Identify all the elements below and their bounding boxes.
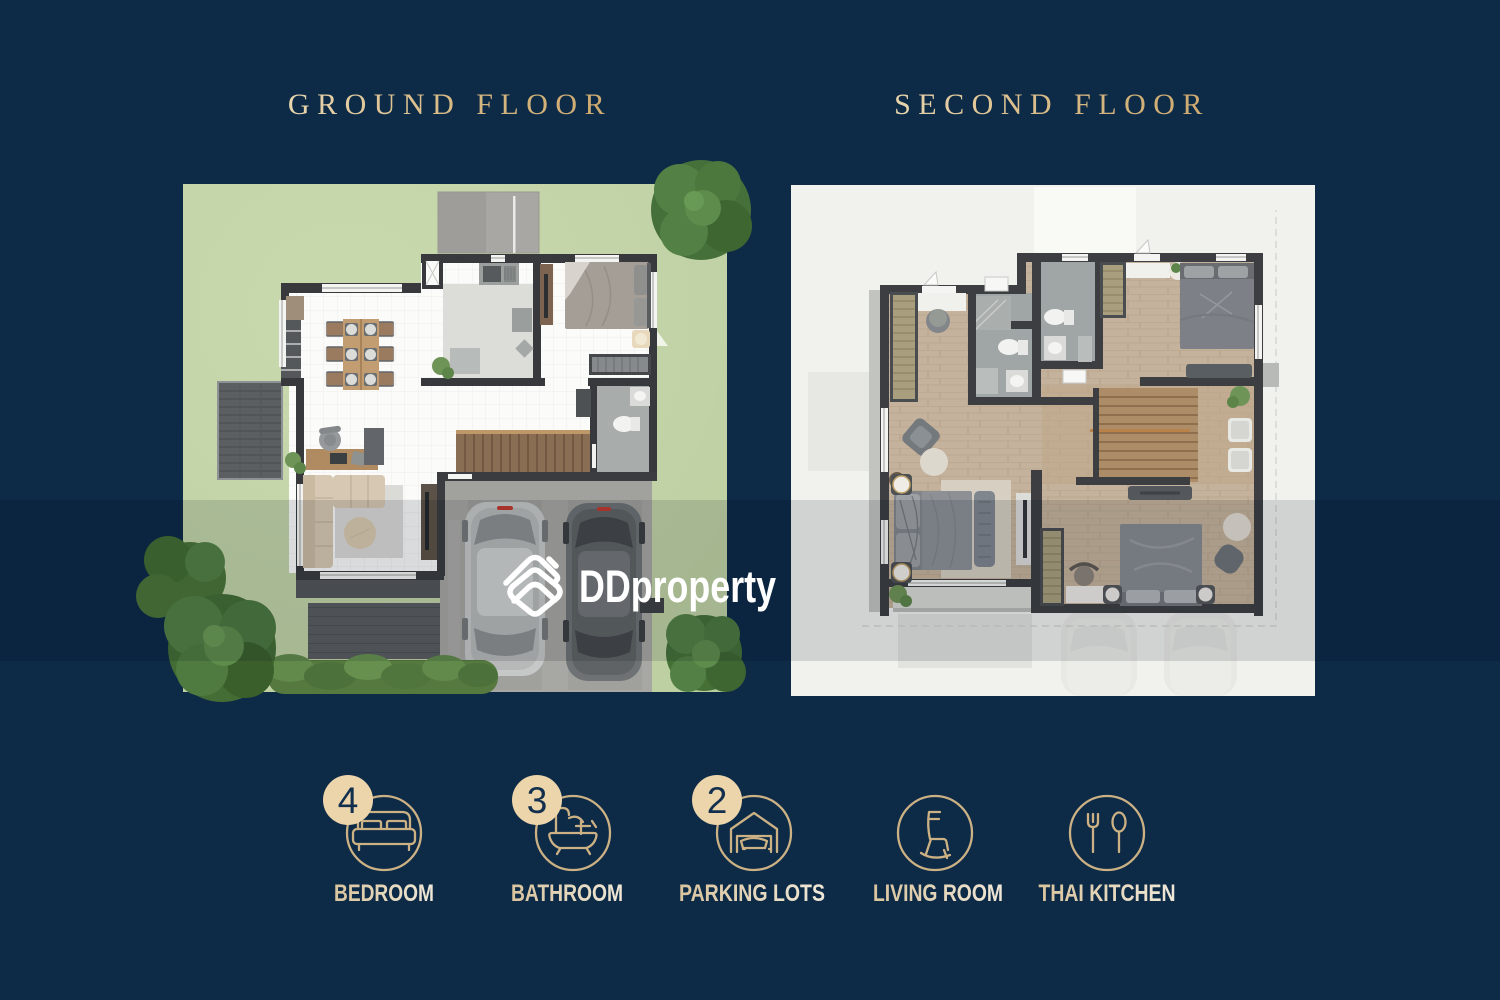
svg-text:4: 4 — [338, 780, 359, 821]
svg-text:LIVING ROOM: LIVING ROOM — [873, 880, 1003, 907]
svg-text:GROUND FLOOR: GROUND FLOOR — [288, 88, 612, 121]
svg-text:THAI KITCHEN: THAI KITCHEN — [1039, 880, 1176, 907]
svg-text:BATHROOM: BATHROOM — [511, 880, 623, 907]
svg-text:BEDROOM: BEDROOM — [334, 880, 434, 907]
svg-text:PARKING LOTS: PARKING LOTS — [679, 880, 825, 907]
svg-text:3: 3 — [527, 780, 548, 821]
svg-text:2: 2 — [707, 780, 728, 821]
svg-text:SECOND FLOOR: SECOND FLOOR — [894, 88, 1210, 121]
svg-text:DDproperty: DDproperty — [579, 561, 776, 612]
